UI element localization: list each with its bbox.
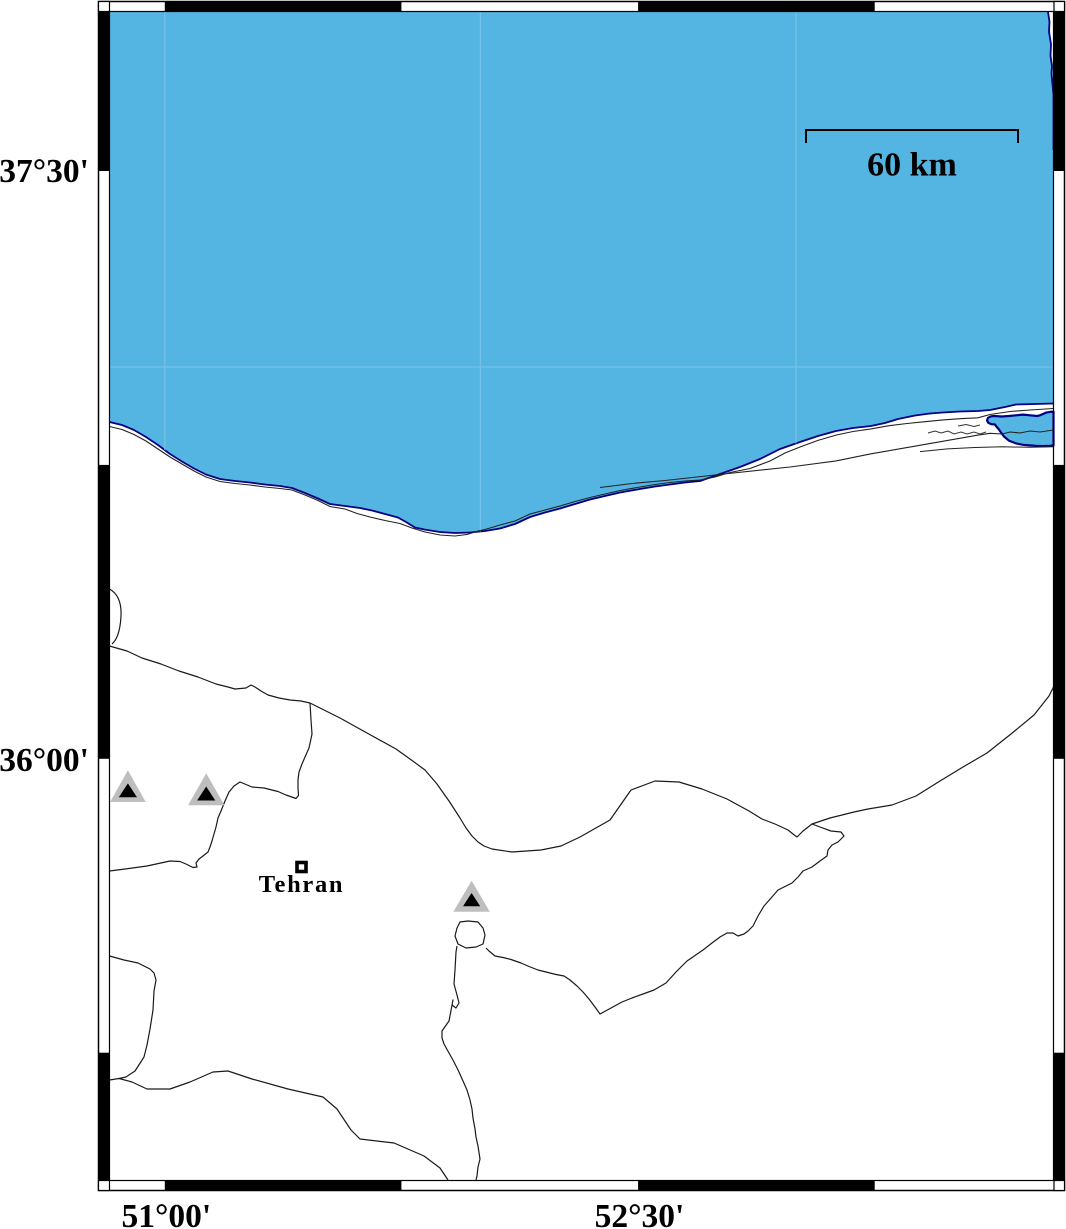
svg-text:60 km: 60 km <box>867 147 957 184</box>
svg-text:37°30': 37°30' <box>0 153 89 190</box>
svg-text:36°00': 36°00' <box>0 742 89 779</box>
svg-text:52°30': 52°30' <box>595 1198 685 1229</box>
svg-text:Tehran: Tehran <box>259 871 345 898</box>
svg-text:51°00': 51°00' <box>121 1198 211 1229</box>
